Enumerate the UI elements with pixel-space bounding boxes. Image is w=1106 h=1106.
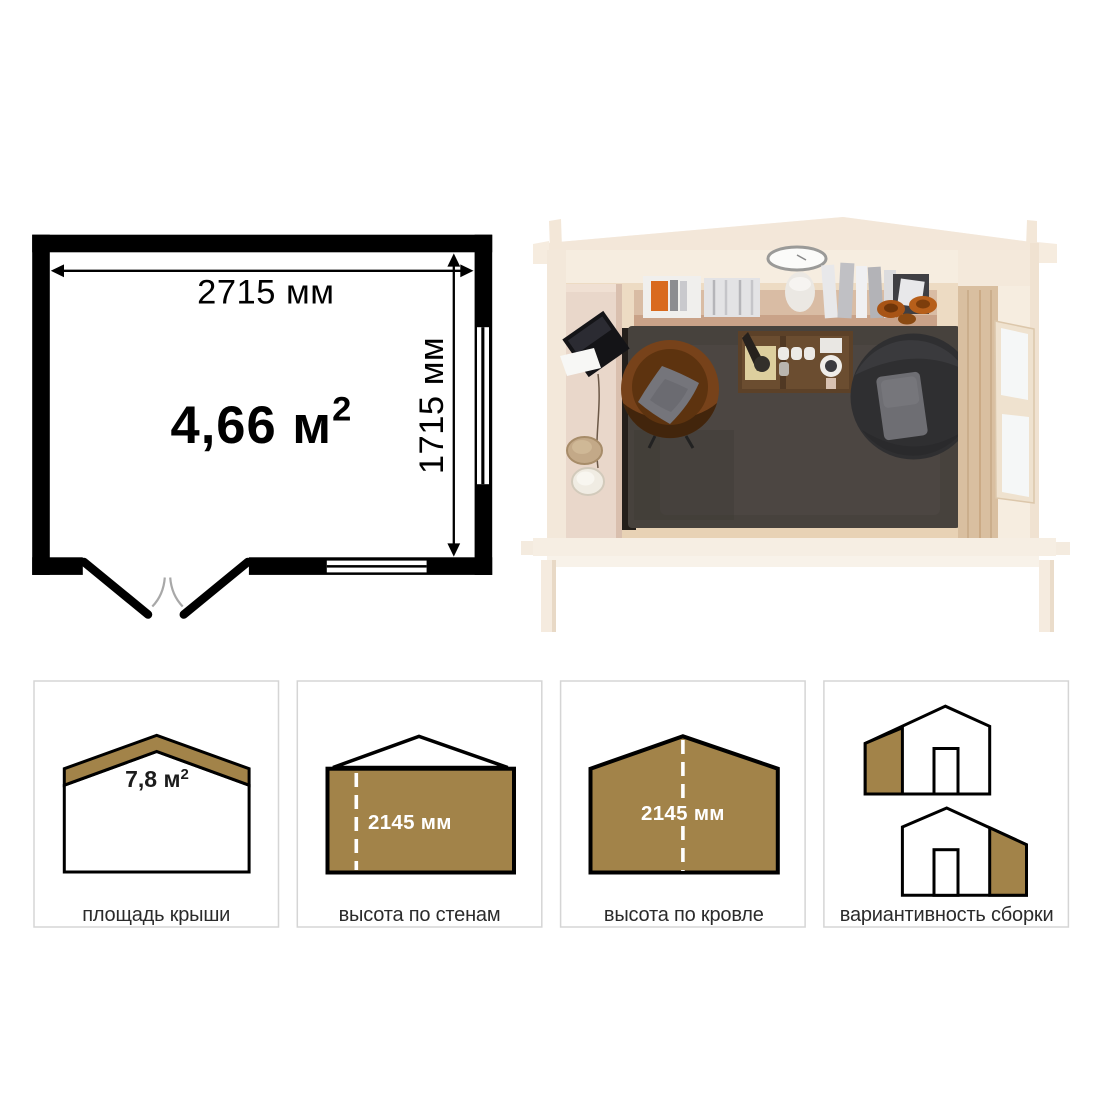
- svg-text:7,8 м2: 7,8 м2: [125, 766, 189, 792]
- svg-text:2145 мм: 2145 мм: [641, 802, 725, 825]
- svg-text:площадь крыши: площадь крыши: [82, 904, 230, 926]
- svg-text:высота по стенам: высота по стенам: [339, 904, 501, 926]
- svg-text:2145 мм: 2145 мм: [368, 811, 452, 834]
- svg-text:вариантивность сборки: вариантивность сборки: [840, 904, 1054, 926]
- svg-text:2715 мм: 2715 мм: [197, 274, 334, 312]
- svg-text:высота по кровле: высота по кровле: [604, 904, 764, 926]
- svg-text:4,66 м2: 4,66 м2: [171, 390, 353, 455]
- svg-text:1715 мм: 1715 мм: [413, 337, 451, 474]
